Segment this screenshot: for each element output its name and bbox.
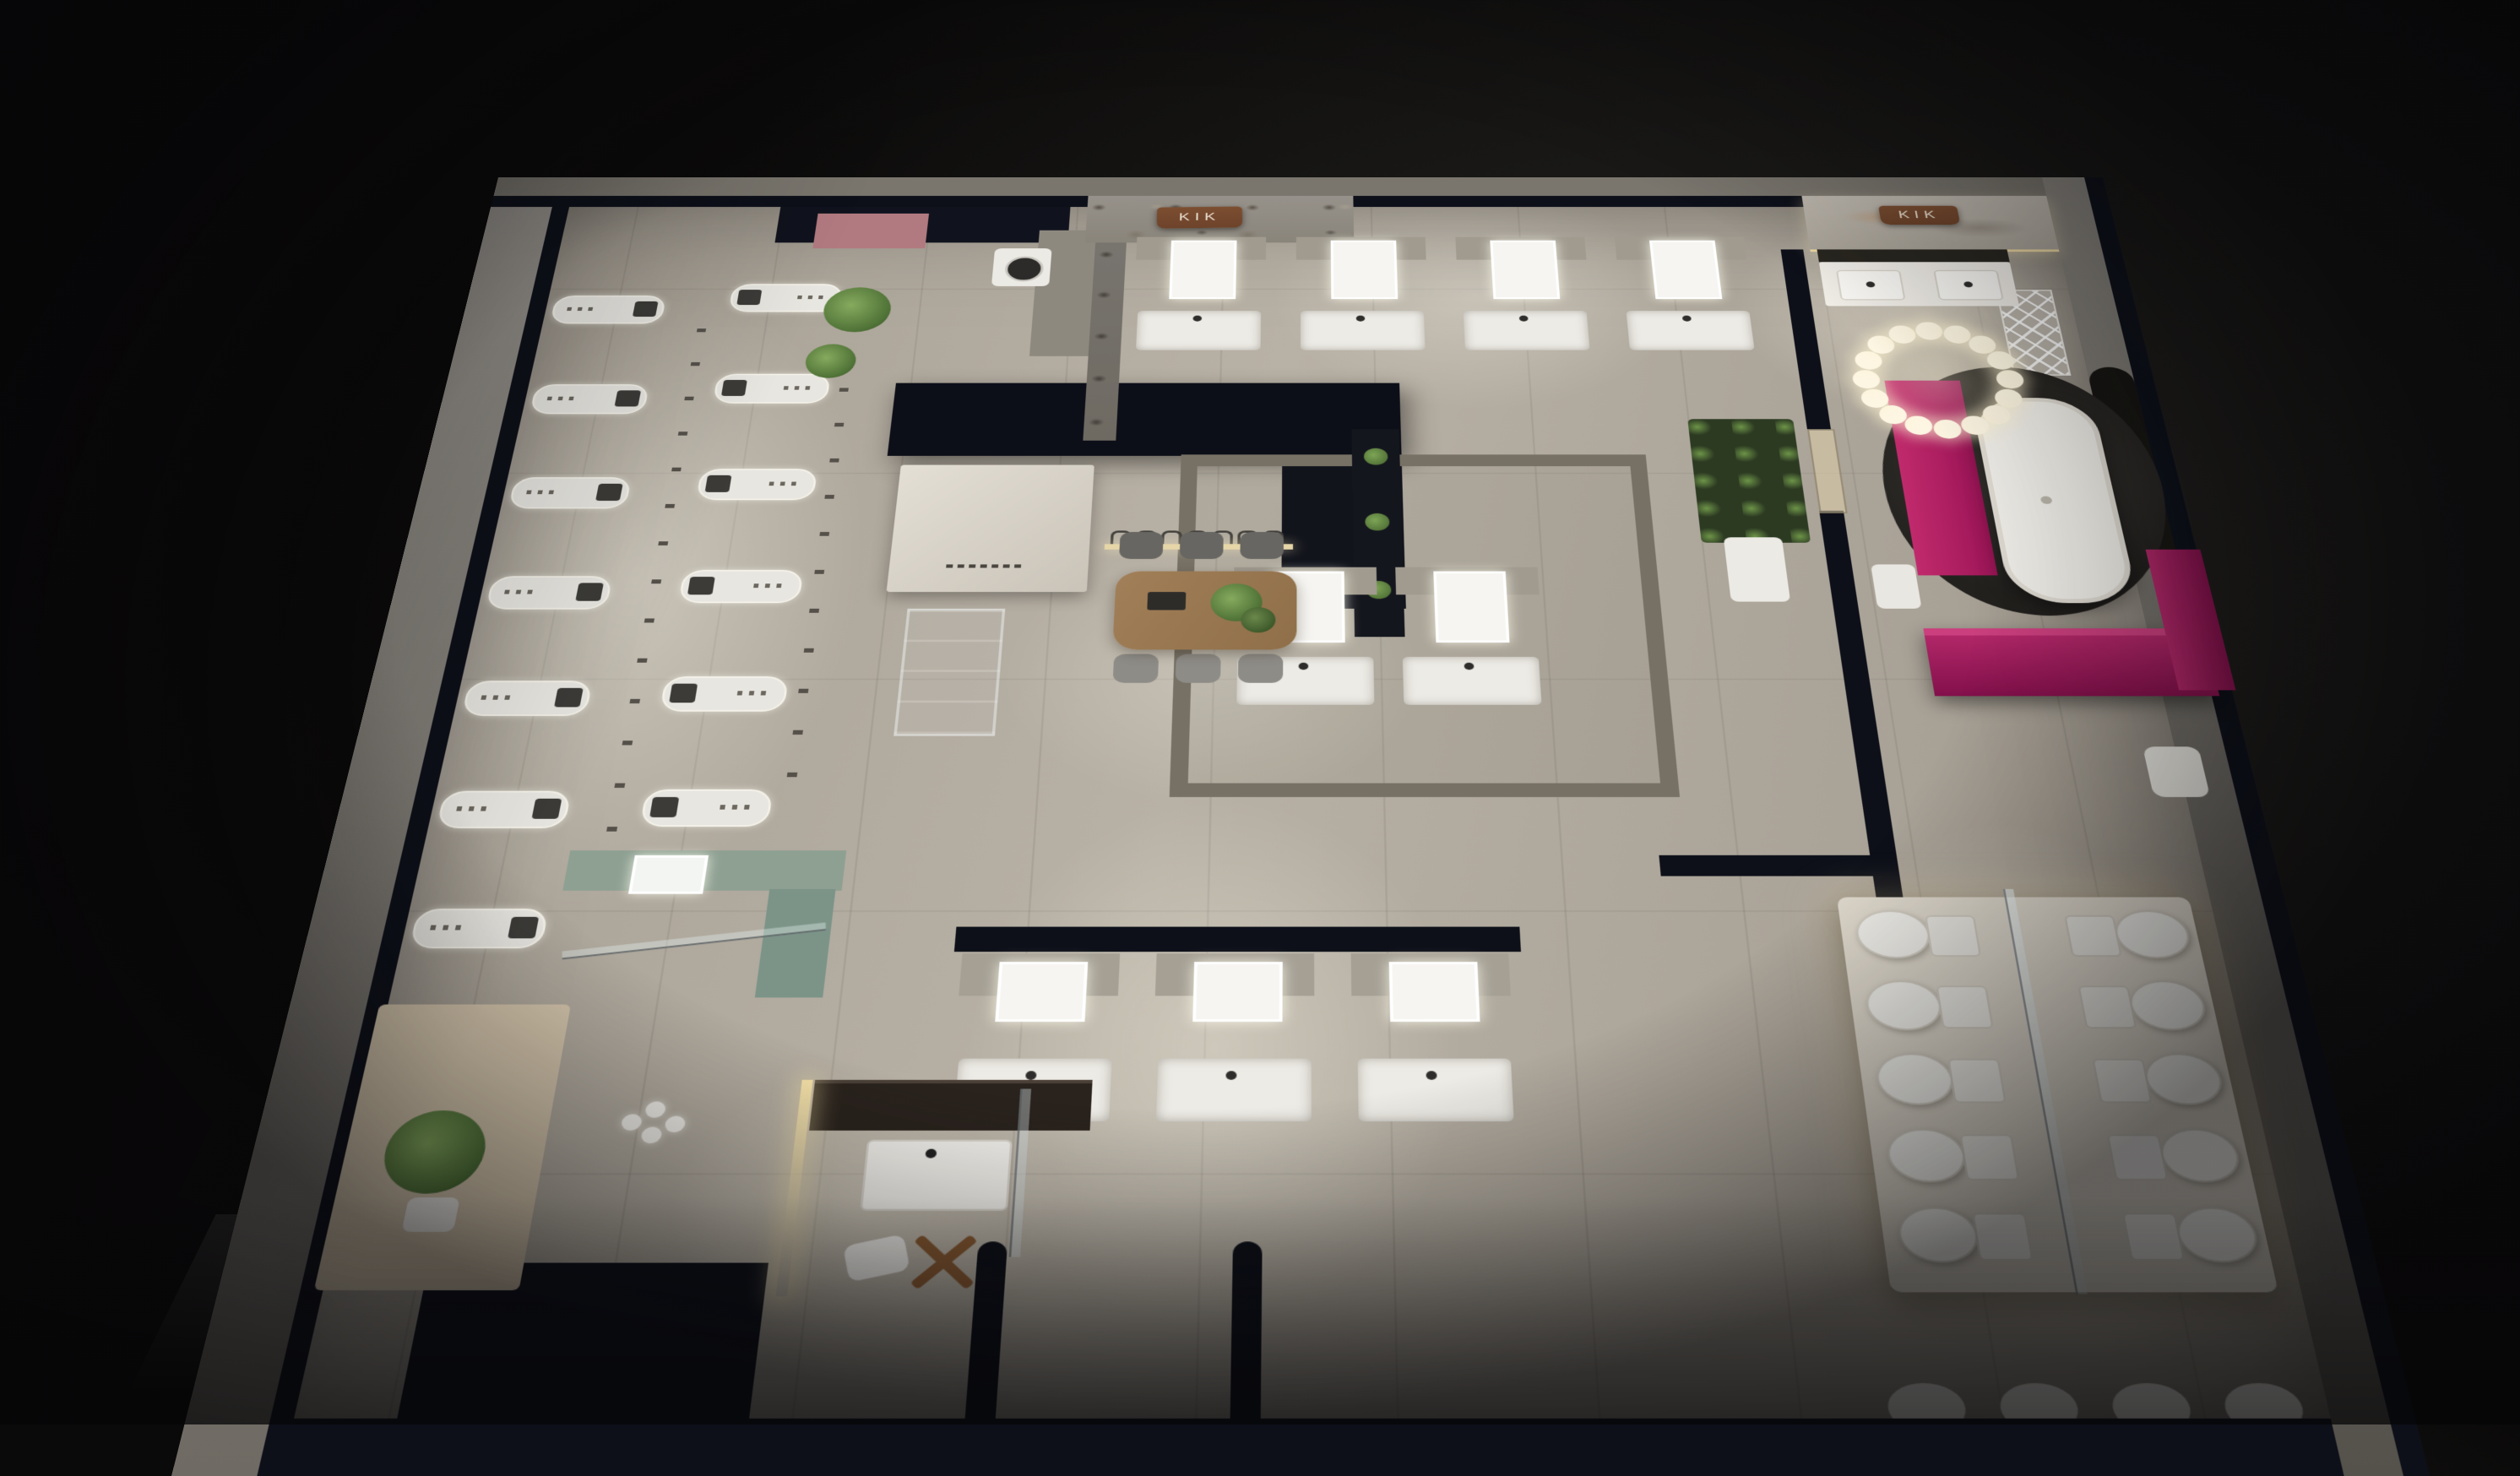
double-sink-vanity bbox=[1819, 262, 2019, 306]
led-mirror bbox=[1649, 241, 1722, 299]
toilet bbox=[2110, 910, 2194, 958]
hand-shower-icon bbox=[430, 925, 466, 931]
shower-display-panel bbox=[713, 374, 831, 404]
toilet-tank bbox=[1972, 1213, 2034, 1261]
toilet bbox=[2140, 1053, 2227, 1104]
led-mirror bbox=[1192, 962, 1283, 1022]
led-mirror bbox=[1169, 241, 1236, 299]
shower-display-panel bbox=[461, 681, 592, 716]
shower-head-icon bbox=[508, 917, 539, 939]
glass-display-case bbox=[893, 609, 1005, 736]
vanity-row-header bbox=[954, 927, 1521, 952]
wood-stool bbox=[901, 1228, 986, 1296]
hand-shower-icon bbox=[768, 482, 801, 486]
pedestal-basin bbox=[1724, 537, 1790, 601]
shower-head-icon bbox=[687, 577, 715, 594]
shower-head-icon bbox=[575, 583, 604, 600]
sage-cabinet bbox=[755, 889, 836, 998]
outer-wall-far bbox=[493, 177, 2107, 196]
wood-consult-table bbox=[1112, 572, 1296, 650]
flower-icon bbox=[664, 1116, 686, 1132]
toilet-tank bbox=[2077, 985, 2137, 1028]
vanity-module bbox=[1150, 953, 1315, 1137]
chair bbox=[1240, 532, 1284, 559]
ring-pendant-light bbox=[1838, 319, 2041, 442]
chair bbox=[1113, 654, 1160, 683]
faucet-icon bbox=[1426, 1071, 1437, 1080]
toilet bbox=[2125, 980, 2210, 1030]
toilet bbox=[1873, 1053, 1957, 1104]
shower-display-panel bbox=[696, 469, 817, 500]
front-wall bbox=[257, 1419, 2343, 1476]
shelf-plant bbox=[1365, 513, 1389, 531]
washing-machine bbox=[991, 248, 1052, 286]
side-table bbox=[1871, 564, 1922, 608]
shower-display-panel bbox=[678, 570, 803, 603]
chair bbox=[1180, 532, 1224, 559]
table-tray bbox=[1147, 592, 1186, 610]
hand-shower-icon bbox=[547, 396, 578, 399]
hand-shower-icon bbox=[481, 695, 515, 699]
shower-head-icon bbox=[669, 683, 698, 703]
shower-display-panel bbox=[550, 296, 666, 323]
sink-basin bbox=[1836, 270, 1906, 301]
flower-cluster bbox=[617, 1101, 701, 1147]
shower-display-panel bbox=[486, 576, 613, 609]
vanity-module bbox=[1296, 237, 1431, 372]
faucet-icon bbox=[1464, 663, 1475, 670]
toilet bbox=[2156, 1129, 2245, 1183]
toilet-tank bbox=[1959, 1134, 2020, 1180]
hand-shower-icon bbox=[737, 691, 771, 695]
vanity-module bbox=[1615, 237, 1762, 372]
hand-shower-icon bbox=[456, 806, 492, 811]
shower-head-icon bbox=[633, 301, 659, 317]
warm-led-strip bbox=[776, 1080, 813, 1296]
sink-basin bbox=[1358, 1059, 1514, 1121]
hand-shower-icon bbox=[784, 386, 815, 389]
washer-door-icon bbox=[1004, 257, 1045, 282]
shower-display-panel bbox=[640, 790, 774, 827]
flower-icon bbox=[644, 1101, 666, 1117]
toilet-tank bbox=[1947, 1059, 2007, 1104]
toilet bbox=[1853, 910, 1933, 958]
shower-display-panel bbox=[508, 477, 632, 508]
toilet-tank bbox=[2092, 1059, 2153, 1104]
entrance-wall-post bbox=[1230, 1241, 1263, 1419]
led-mirror bbox=[1389, 962, 1480, 1022]
platform-side-wall bbox=[1659, 855, 1876, 876]
showroom-scene: KIK KIK bbox=[0, 177, 2520, 1424]
shelf-plant bbox=[1364, 448, 1388, 465]
green-plant-wall bbox=[1687, 419, 1811, 542]
vanity-module bbox=[1455, 237, 1596, 372]
white-planter bbox=[401, 1197, 459, 1232]
shower-head-icon bbox=[736, 290, 762, 305]
flower-icon bbox=[640, 1127, 662, 1144]
pink-countertop bbox=[812, 214, 929, 248]
towel bbox=[843, 1234, 910, 1283]
table-plant bbox=[1241, 607, 1275, 632]
toilet-tank bbox=[2064, 915, 2122, 957]
corridor-chair bbox=[2143, 746, 2210, 797]
hand-shower-icon bbox=[720, 805, 755, 810]
faucet-icon bbox=[1356, 316, 1366, 322]
vanity-module bbox=[1351, 953, 1518, 1137]
shower-head-icon bbox=[554, 688, 584, 708]
reception-counter bbox=[887, 465, 1094, 592]
faucet-icon bbox=[1682, 316, 1692, 322]
toilet-tank bbox=[2121, 1213, 2185, 1261]
hand-shower-icon bbox=[567, 307, 597, 311]
shower-head-icon bbox=[721, 380, 747, 396]
flower-icon bbox=[621, 1114, 643, 1130]
hand-shower-icon bbox=[526, 491, 558, 495]
vanity-sink bbox=[860, 1140, 1013, 1211]
glass-door bbox=[1807, 429, 1848, 513]
toilet-tank bbox=[1925, 915, 1982, 957]
tub-drain-icon bbox=[2040, 497, 2053, 504]
led-mirror bbox=[628, 855, 709, 894]
shower-head-icon bbox=[649, 797, 679, 817]
shower-display-panel bbox=[436, 791, 571, 828]
chair bbox=[1119, 532, 1164, 559]
shower-head-icon bbox=[595, 484, 623, 501]
led-mirror bbox=[1490, 241, 1560, 299]
faucet-icon bbox=[1866, 281, 1876, 287]
brand-sign: KIK bbox=[1878, 206, 1960, 225]
hand-shower-icon bbox=[797, 296, 828, 299]
counter-logo-text bbox=[946, 564, 1026, 567]
vanity-module bbox=[1130, 237, 1266, 372]
shower-head-icon bbox=[615, 390, 642, 406]
shower-head-icon bbox=[531, 799, 562, 819]
dark-vanity-cabinet bbox=[809, 1080, 1093, 1131]
shower-display-panel bbox=[530, 384, 649, 414]
toilet bbox=[1895, 1207, 1982, 1262]
shower-head-icon bbox=[705, 475, 732, 492]
shower-display-panel bbox=[660, 676, 789, 712]
toilet-tank bbox=[1936, 985, 1994, 1028]
toilet-tank bbox=[2106, 1134, 2169, 1180]
vanity-backsplash bbox=[1817, 249, 2010, 262]
sink-basin bbox=[1933, 270, 2004, 301]
hand-shower-icon bbox=[504, 590, 537, 594]
showroom-floor-plan: KIK KIK bbox=[171, 177, 2430, 1476]
chair bbox=[1176, 654, 1221, 683]
led-mirror bbox=[1433, 572, 1509, 643]
toilet bbox=[1884, 1129, 1969, 1183]
hand-shower-icon bbox=[753, 583, 786, 588]
far-wall-vanity-row bbox=[1130, 237, 1811, 372]
led-mirror bbox=[995, 962, 1088, 1022]
led-mirror bbox=[1331, 241, 1398, 299]
sink-basin bbox=[1156, 1059, 1312, 1121]
vanity-module bbox=[1395, 567, 1548, 732]
brand-sign: KIK bbox=[1157, 206, 1243, 228]
toilet bbox=[2172, 1207, 2262, 1262]
toilet bbox=[1863, 980, 1945, 1030]
shower-display-panel bbox=[409, 909, 549, 948]
toilet-display-platform bbox=[1837, 898, 2278, 1293]
faucet-icon bbox=[1519, 316, 1529, 322]
chair bbox=[1238, 654, 1283, 683]
faucet-icon bbox=[1963, 281, 1974, 287]
